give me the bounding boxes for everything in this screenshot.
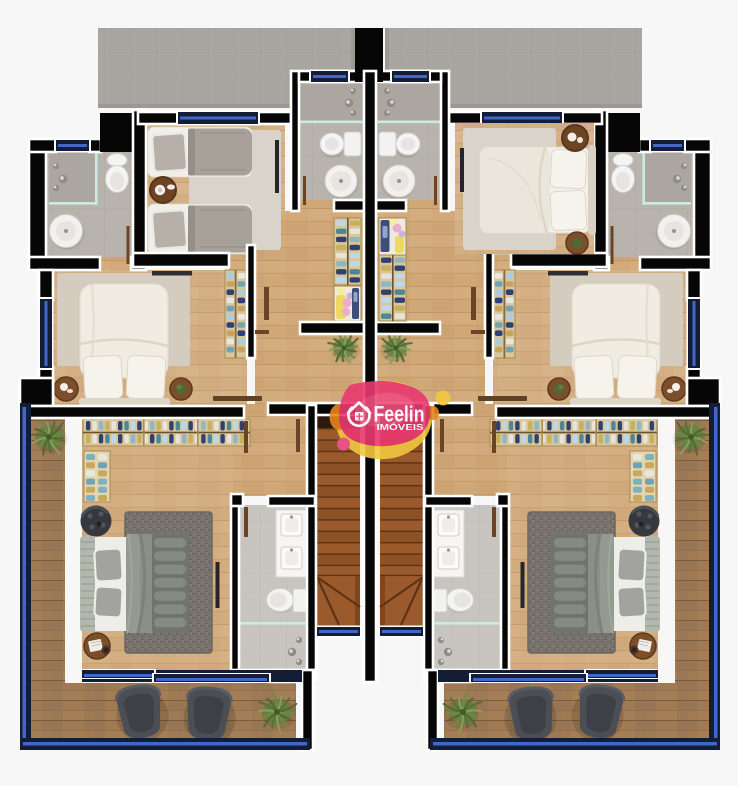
- svg-text:IMÓVEIS: IMÓVEIS: [377, 423, 425, 432]
